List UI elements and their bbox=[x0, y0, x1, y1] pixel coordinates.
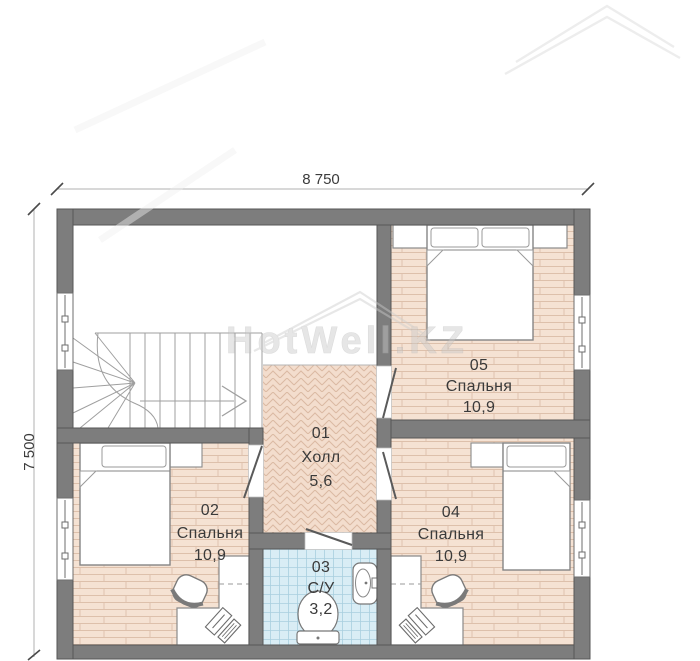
wall-bedroom05-bedroom04 bbox=[377, 420, 590, 438]
wall-bathroom-top-right bbox=[352, 533, 391, 549]
room-04-name: Спальня bbox=[418, 526, 484, 543]
watermark-roof-outline-top-right bbox=[505, 6, 680, 74]
room-02-number: 02 bbox=[201, 502, 219, 519]
dimension-top-label: 8 750 bbox=[302, 171, 340, 188]
wall-stairroom-bedroom02 bbox=[57, 428, 263, 443]
room-03-name: С/У bbox=[307, 580, 335, 597]
pillow-symbol bbox=[482, 228, 529, 247]
room-04-number: 04 bbox=[442, 504, 460, 521]
pillow-symbol bbox=[507, 446, 566, 467]
wall-bottom bbox=[57, 645, 590, 659]
window-bedroom05-right bbox=[574, 295, 590, 370]
room-01-area: 5,6 bbox=[309, 473, 332, 490]
dimension-left-label: 7 500 bbox=[21, 433, 38, 471]
nightstand-symbol bbox=[170, 443, 202, 467]
room-03-number: 03 bbox=[312, 559, 330, 576]
window-stairroom-left bbox=[57, 293, 73, 370]
sink-faucet bbox=[372, 578, 377, 588]
pillow-symbol bbox=[102, 446, 166, 467]
room-01-number: 01 bbox=[312, 425, 330, 442]
floor-plan: 01 Холл 5,6 02 Спальня 10,9 03 С/У 3,2 0… bbox=[0, 0, 700, 661]
wall-hall-right-middle bbox=[377, 418, 391, 448]
window-bedroom02-left bbox=[57, 498, 73, 580]
room-01-name: Холл bbox=[302, 449, 341, 466]
pillow-symbol bbox=[431, 228, 478, 247]
room-05-name: Спальня bbox=[446, 378, 512, 395]
nightstand-symbol bbox=[471, 443, 503, 467]
room-05-number: 05 bbox=[470, 357, 488, 374]
wall-hall-right-lower bbox=[377, 500, 391, 645]
floor-plan-page: 01 Холл 5,6 02 Спальня 10,9 03 С/У 3,2 0… bbox=[0, 0, 700, 661]
wall-hall-left-upper bbox=[249, 428, 263, 445]
sink-drain bbox=[365, 582, 368, 585]
room-05-area: 10,9 bbox=[463, 399, 495, 416]
watermark-text: HotWell.KZ bbox=[226, 320, 468, 362]
room-02-name: Спальня bbox=[177, 525, 243, 542]
window-bedroom04-right bbox=[574, 500, 590, 577]
room-04-area: 10,9 bbox=[435, 548, 467, 565]
wall-bathroom-top-left bbox=[249, 533, 305, 549]
room-02-area: 10,9 bbox=[194, 547, 226, 564]
wall-hall-left-lower bbox=[249, 497, 263, 645]
toilet-button bbox=[317, 637, 320, 640]
door-opening-bathroom bbox=[305, 533, 352, 550]
door-opening-bedroom02 bbox=[249, 445, 264, 497]
room-03-area: 3,2 bbox=[309, 601, 332, 618]
